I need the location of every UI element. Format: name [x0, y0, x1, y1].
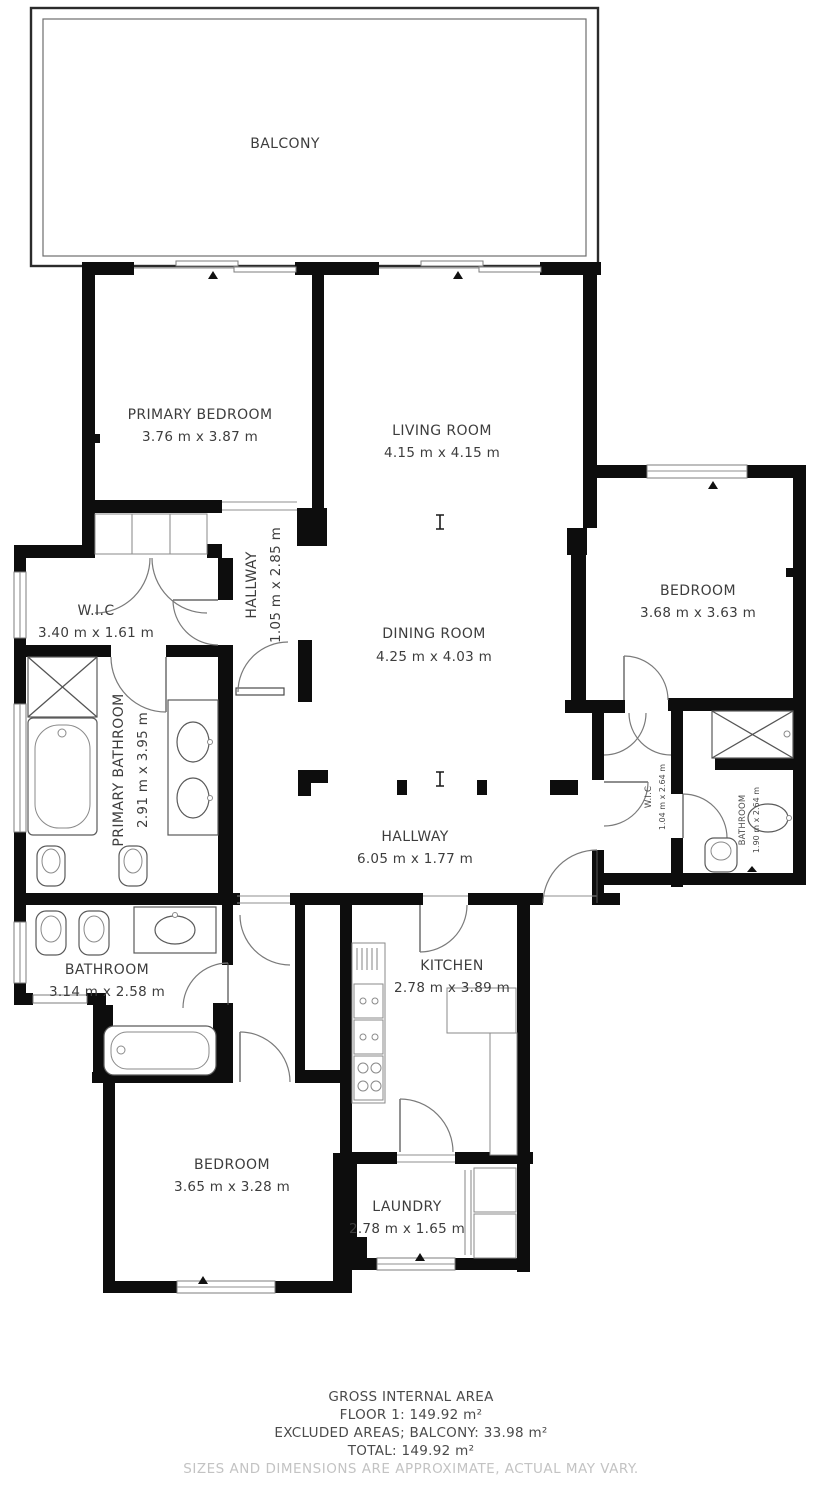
laundry-dims: 2.78 m x 1.65 m — [349, 1221, 465, 1237]
wic-primary-label: W.I.C — [77, 603, 114, 619]
hallway-upper-label: HALLWAY — [244, 551, 260, 618]
total-area-line: TOTAL: 149.92 m² — [347, 1443, 475, 1459]
floor-plan-page: BALCONY PRIMARY BEDROOM 3.76 m x 3.87 m … — [0, 0, 824, 1501]
footer: GROSS INTERNAL AREA FLOOR 1: 149.92 m² E… — [183, 1389, 638, 1477]
shower-primary — [28, 657, 97, 717]
disclaimer-line: SIZES AND DIMENSIONS ARE APPROXIMATE, AC… — [183, 1461, 638, 1477]
living-room-label: LIVING ROOM — [392, 423, 492, 439]
bedroom-bottom-label: BEDROOM — [194, 1157, 270, 1173]
hallway-upper-dims: 1.05 m x 2.85 m — [268, 527, 284, 643]
wic-primary-dims: 3.40 m x 1.61 m — [38, 625, 154, 641]
excluded-areas-line: EXCLUDED AREAS; BALCONY: 33.98 m² — [274, 1425, 547, 1441]
dining-room-dims: 4.25 m x 4.03 m — [376, 649, 492, 665]
vanity-primary — [168, 700, 218, 835]
living-room-dims: 4.15 m x 4.15 m — [384, 445, 500, 461]
primary-bedroom-label: PRIMARY BEDROOM — [128, 407, 273, 423]
wic-right-label: W.I.C — [644, 786, 654, 808]
bedroom-right-label: BEDROOM — [660, 583, 736, 599]
floor-area-line: FLOOR 1: 149.92 m² — [340, 1407, 483, 1423]
hallway-main-label: HALLWAY — [381, 829, 448, 845]
bathroom-left-dims: 3.14 m x 2.58 m — [49, 984, 165, 1000]
vanity-left-bathroom — [134, 907, 216, 953]
wardrobe — [95, 514, 207, 554]
kitchen-counter — [352, 943, 517, 1155]
primary-bedroom-dims: 3.76 m x 3.87 m — [142, 429, 258, 445]
bathroom-right-dims: 1.90 m x 2.64 m — [752, 787, 761, 853]
kitchen-dims: 2.78 m x 3.89 m — [394, 980, 510, 996]
bathtub-left-bathroom — [104, 1026, 216, 1075]
primary-bathroom-dims: 2.91 m x 3.95 m — [135, 712, 151, 828]
primary-bathroom-label: PRIMARY BATHROOM — [111, 693, 127, 846]
bathtub-primary — [28, 718, 97, 835]
hallway-main-dims: 6.05 m x 1.77 m — [357, 851, 473, 867]
bedroom-right-dims: 3.68 m x 3.63 m — [640, 605, 756, 621]
laundry-machines — [474, 1168, 516, 1258]
bathroom-left-label: BATHROOM — [65, 962, 149, 978]
balcony-label: BALCONY — [250, 136, 320, 152]
floor-plan-svg: BALCONY PRIMARY BEDROOM 3.76 m x 3.87 m … — [0, 0, 824, 1501]
kitchen-label: KITCHEN — [420, 958, 483, 974]
shower-right-bathroom — [712, 711, 793, 758]
toilet-primary — [37, 846, 147, 886]
toilet-right-bathroom — [705, 838, 737, 872]
toilet-left-bathroom — [36, 911, 109, 955]
bedroom-bottom-dims: 3.65 m x 3.28 m — [174, 1179, 290, 1195]
wic-right-dims: 1.04 m x 2.64 m — [658, 764, 667, 830]
dining-room-label: DINING ROOM — [382, 626, 486, 642]
bathroom-right-label: BATHROOM — [738, 795, 748, 846]
laundry-label: LAUNDRY — [372, 1199, 441, 1215]
gross-internal-area-line: GROSS INTERNAL AREA — [328, 1389, 494, 1405]
